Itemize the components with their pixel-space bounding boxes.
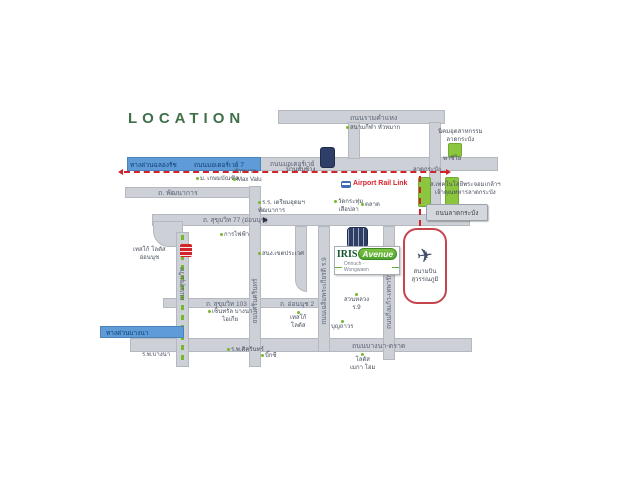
poi-prawet: สนง.เขตประเวศ <box>258 251 304 259</box>
label-latkrabang: ถนนลาดกระบัง <box>436 208 479 218</box>
poi-kmitl: ส.เทคโนโลยีพระจอมเกล้าฯ เจ้าคุณทหารลาดกร… <box>430 182 501 197</box>
poi-dot-icon <box>208 310 211 313</box>
poi-dot-icon <box>258 252 261 255</box>
train-icon <box>341 181 351 188</box>
poi-triamudom: ร.ร. เตรียมอุดมฯ พัฒนาการ <box>258 200 305 215</box>
poi-central-bangna: เซ็นทรัล บางนา ไอเกีย <box>208 309 252 324</box>
label-srinakarin: ถนนศรีนครินทร์ <box>250 256 260 346</box>
poi-dot-icon <box>346 126 349 129</box>
label-chaloemphrakiat: ถนนเฉลิมพระเกียรติ ร.9 <box>319 246 329 336</box>
tesco-lotus-icon <box>180 244 192 257</box>
rail-arrow-right-icon <box>446 169 451 175</box>
rail-link-line <box>124 171 446 173</box>
airport-name-line2: สุวรรณภูมิ <box>412 277 439 285</box>
poi-dot-icon <box>361 353 364 356</box>
arl-station-icon <box>320 147 335 168</box>
page-title: LOCATION <box>128 110 245 127</box>
logo-dash-right <box>392 267 399 268</box>
rail-arrow-left-icon <box>118 169 123 175</box>
poi-dot-icon <box>261 354 264 357</box>
poi-maxvalu: Max Valu <box>233 177 262 185</box>
poi-dot-icon <box>220 233 223 236</box>
label-tollway-chalongrat: ทางด่วนฉลองรัช <box>130 160 177 170</box>
poi-dot-icon <box>258 201 261 204</box>
poi-bangna-hospital: ร.พ.บางนา <box>142 352 170 360</box>
airport-name-line1: สนามบิน <box>412 269 439 277</box>
project-building-icon <box>347 227 368 248</box>
poi-dot-icon <box>227 348 230 351</box>
airplane-icon: ✈ <box>416 246 434 267</box>
iris-avenue-logo: IRIS Avenue Onnuch - Wongwaen <box>334 246 400 275</box>
poi-dot-icon <box>297 311 300 314</box>
label-bangna-trat: ถนนบางนา-ตราด <box>352 341 405 352</box>
label-phatthanakan: ถ. พัฒนาการ <box>158 188 198 199</box>
poi-dot-icon <box>196 177 199 180</box>
poi-tesco-srinut: เทสโก้ โลตัส <box>290 311 307 330</box>
poi-stadium: สนามกีฬา หัวหมาก <box>346 125 400 133</box>
poi-watkrathum: วัดกระทุ่ม เสือปลา <box>334 199 363 214</box>
logo-avenue-text: Avenue <box>358 248 397 260</box>
poi-lotus-mega: โลตัส เมกา โฮม <box>350 353 376 372</box>
label-onnut2: ถ. อ่อนนุช 2 <box>280 299 314 309</box>
poi-suanluang: สวนหลวง ร.9 <box>344 293 369 312</box>
suvarnabhumi-airport-box: ✈ สนามบิน สุวรรณภูมิ <box>403 228 447 304</box>
label-ramkhamhaeng: ถนนรามคำแหง <box>350 113 397 124</box>
label-tollway-bangna: ทางด่วนบางนา <box>106 328 148 338</box>
poi-tesco-onnut: เทสโก้ โลตัส อ่อนนุช <box>133 247 166 262</box>
poi-talat: ตลาด <box>361 202 380 210</box>
green-area-paseo <box>448 143 462 157</box>
location-map: LOCATION ถนนรามคำแหง ทางด่วนฉลองรัช ถนนม… <box>0 0 640 480</box>
poi-paseo: พาซิโอ <box>443 156 461 164</box>
poi-dot-icon <box>355 293 358 296</box>
poi-dot-icon <box>361 203 364 206</box>
poi-bigc: บิ๊กซี <box>261 353 277 361</box>
poi-dot-icon <box>341 320 344 323</box>
label-latkrabang-box: ถนนลาดกระบัง <box>426 204 488 221</box>
logo-iris-text: IRIS <box>337 249 358 260</box>
poi-electricity: การไฟฟ้า <box>220 232 249 240</box>
label-sukhumvit77: ถ. สุขุมวิท 77 (อ่อนนุช) <box>203 215 267 225</box>
poi-dot-icon <box>233 178 236 181</box>
rail-link-branch <box>419 176 421 226</box>
poi-boonthavorn: บุญถาวร <box>331 320 354 332</box>
road-onnut <box>152 214 470 226</box>
airport-rail-link-label: Airport Rail Link <box>353 180 407 187</box>
logo-subtitle: Onnuch - Wongwaen <box>344 261 390 273</box>
onnut-direction-arrow-icon <box>263 217 268 223</box>
label-sukhumvit103: ถ. สุขุมวิท 103 <box>206 299 247 309</box>
road-onnut2-connector <box>295 226 307 292</box>
poi-dot-icon <box>334 200 337 203</box>
logo-dash-left <box>335 267 342 268</box>
poi-nikhom: นิคมอุตสาหกรรม ลาดกระบัง <box>438 129 483 144</box>
poi-sikarin: ร.พ.ศิครินทร์ <box>227 347 264 355</box>
